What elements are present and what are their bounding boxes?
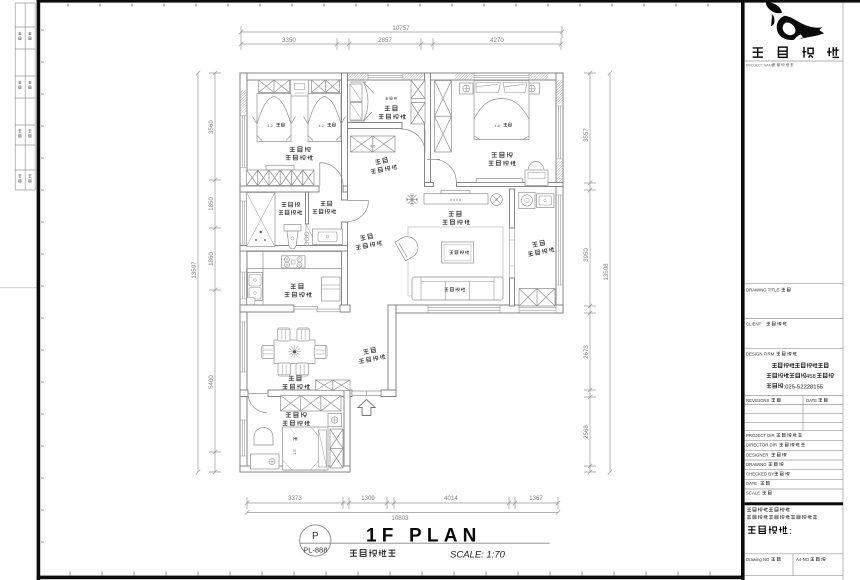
svg-text:4.5: 4.5	[370, 145, 375, 149]
svg-text:1.5: 1.5	[292, 449, 297, 455]
svg-text:1860: 1860	[208, 252, 215, 266]
svg-text:SCALE: 1:70: SCALE: 1:70	[450, 550, 506, 561]
svg-text:1.2: 1.2	[267, 123, 273, 128]
svg-text:1.2: 1.2	[318, 123, 324, 128]
svg-text:13507: 13507	[191, 261, 198, 279]
svg-text::025-52228155: :025-52228155	[784, 384, 824, 390]
svg-text:PROJECT NAME: PROJECT NAME	[746, 64, 775, 68]
svg-text:DIRECTOR DIR: DIRECTOR DIR	[746, 443, 777, 448]
svg-text:REVISIONS: REVISIONS	[746, 398, 770, 403]
svg-text:PL-888: PL-888	[303, 546, 327, 555]
svg-text:DATE: DATE	[746, 481, 757, 486]
svg-text:3557: 3557	[583, 128, 590, 142]
svg-text:3373: 3373	[288, 495, 302, 502]
svg-text:3950: 3950	[583, 248, 590, 262]
svg-text:1850: 1850	[208, 197, 215, 211]
svg-text:A4-NO: A4-NO	[796, 557, 810, 562]
svg-text:3350: 3350	[282, 37, 296, 44]
svg-text:CHECKED BY: CHECKED BY	[746, 472, 774, 477]
svg-text:DESIGNER: DESIGNER	[746, 453, 768, 458]
svg-text:SCALE: SCALE	[746, 491, 760, 496]
svg-text:5400: 5400	[208, 375, 215, 389]
svg-text:Drawing NO: Drawing NO	[746, 557, 770, 562]
svg-text:####: ####	[450, 198, 462, 202]
svg-text:13508: 13508	[603, 263, 610, 281]
svg-text:1367: 1367	[529, 495, 543, 502]
svg-text:2857: 2857	[378, 37, 392, 44]
svg-text:1F PLAN: 1F PLAN	[366, 526, 482, 547]
svg-text:DRAWING TITLE: DRAWING TITLE	[746, 288, 780, 293]
svg-text:10803: 10803	[391, 515, 409, 522]
svg-text:PROJECT DIR: PROJECT DIR	[746, 433, 775, 438]
svg-text:DESIGN FIRM: DESIGN FIRM	[746, 352, 775, 357]
svg-text:2568: 2568	[583, 425, 590, 439]
svg-text:1309: 1309	[361, 495, 375, 502]
svg-text:2673: 2673	[583, 345, 590, 359]
svg-text:10757: 10757	[392, 25, 410, 32]
svg-text:P: P	[312, 531, 319, 542]
svg-text::: :	[789, 526, 792, 536]
svg-text:1.8: 1.8	[494, 123, 500, 128]
svg-text:CLIENT: CLIENT	[746, 322, 762, 327]
svg-text:DRAWING: DRAWING	[746, 462, 767, 467]
svg-text:458: 458	[806, 374, 817, 380]
svg-text:DATE: DATE	[806, 398, 817, 403]
svg-text:4014: 4014	[444, 495, 458, 502]
svg-text:4270: 4270	[490, 37, 504, 44]
svg-text:3560: 3560	[208, 120, 215, 134]
